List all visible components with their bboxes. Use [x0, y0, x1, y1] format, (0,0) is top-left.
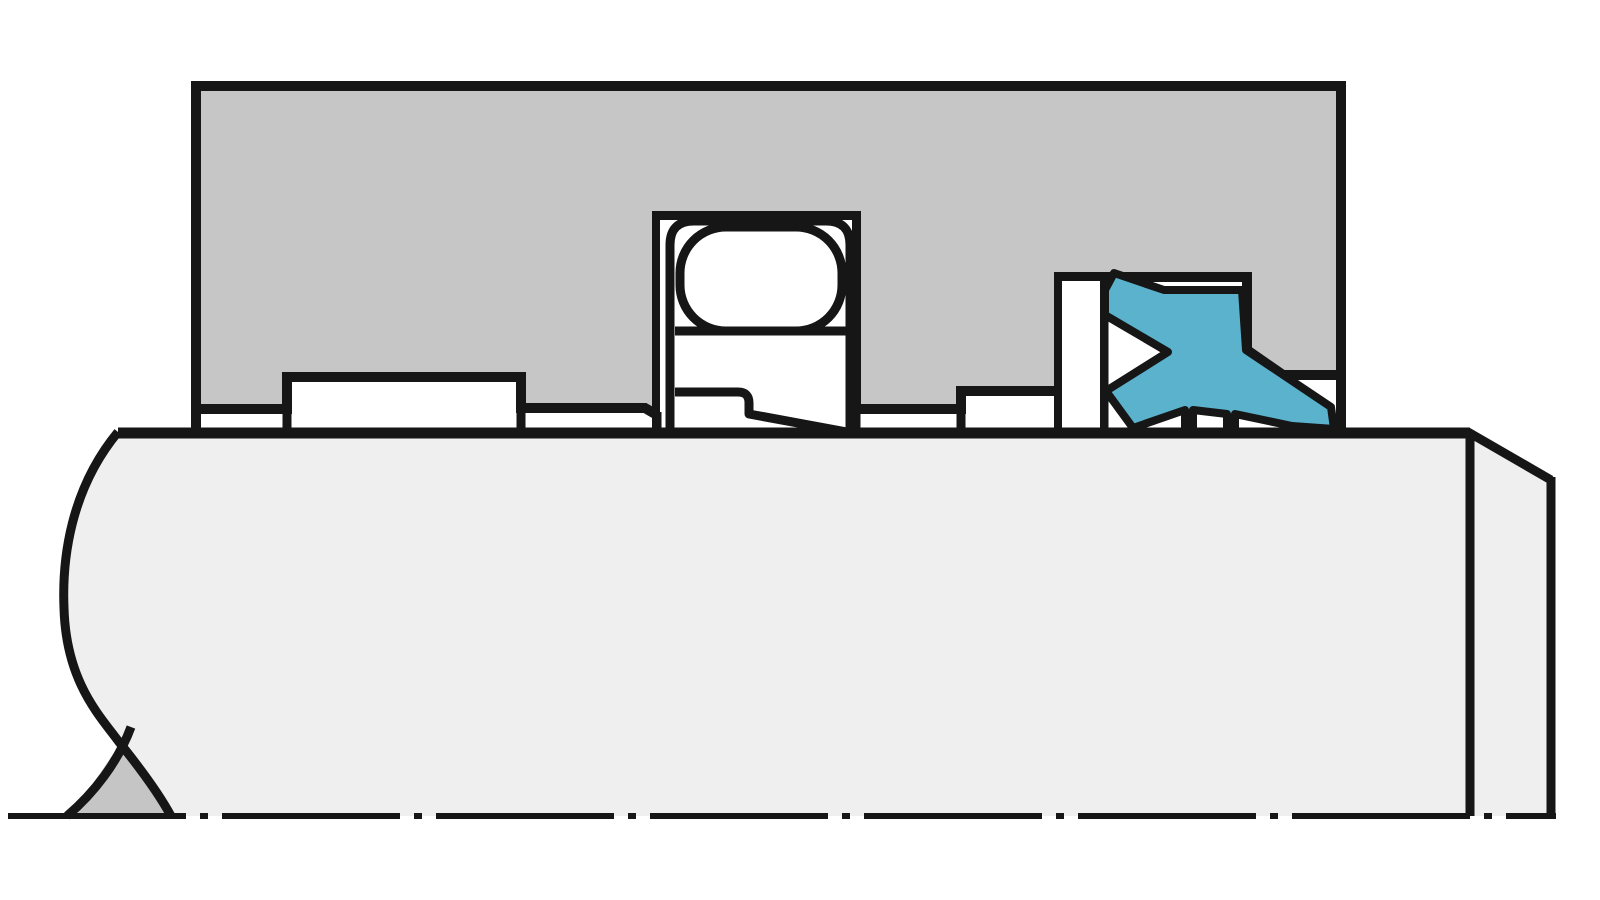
- seal-retainer-washer: [1058, 277, 1104, 434]
- shaft-seal-cross-section-diagram: [0, 0, 1600, 900]
- bearing-ball: [680, 227, 842, 331]
- shaft-body: [64, 433, 1551, 816]
- diagram-svg: [0, 0, 1600, 900]
